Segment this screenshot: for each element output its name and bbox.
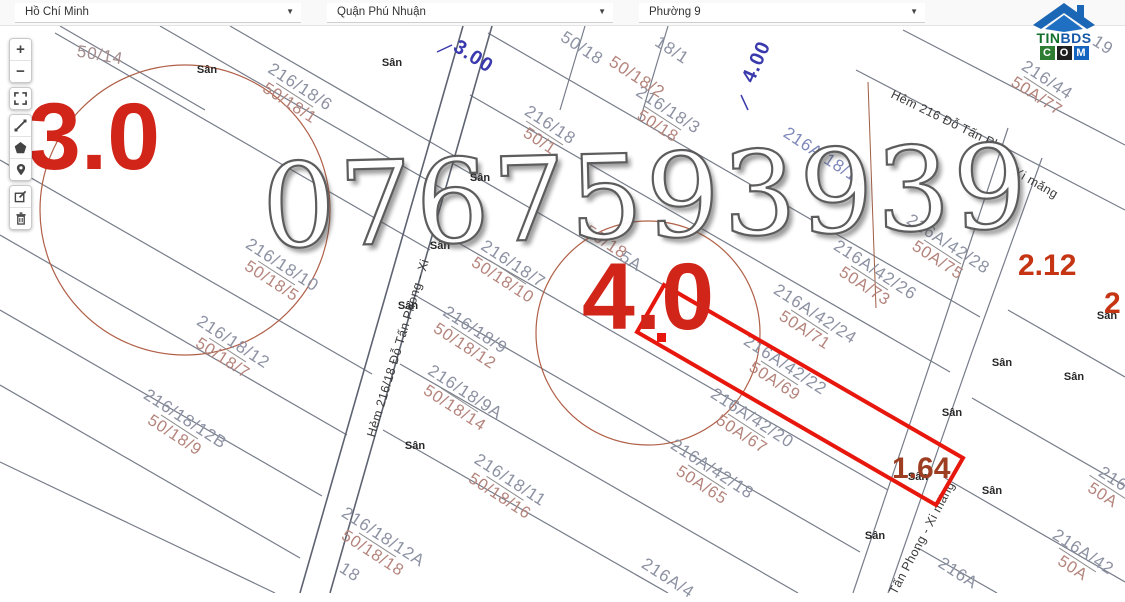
measurement-value: 4.0 bbox=[582, 252, 714, 342]
select-ward[interactable]: Phường 9 ▼ bbox=[639, 3, 925, 23]
select-city-value: Hồ Chí Minh bbox=[25, 6, 89, 18]
select-district[interactable]: Quận Phú Nhuận ▼ bbox=[327, 3, 613, 23]
map-canvas[interactable]: 0767593939 216/18/650/18/1216/1850/1216/… bbox=[0, 0, 1125, 593]
edit-button[interactable] bbox=[10, 186, 31, 208]
measurement-value: 2.12 bbox=[1018, 252, 1076, 281]
select-district-value: Quận Phú Nhuận bbox=[337, 6, 426, 18]
house-icon bbox=[1033, 3, 1095, 33]
map-toolbar: + − bbox=[9, 38, 32, 230]
location-filter-bar: Hồ Chí Minh ▼ Quận Phú Nhuận ▼ Phường 9 … bbox=[0, 0, 1125, 26]
marker-icon bbox=[15, 163, 27, 176]
measurement-value: 3.0 bbox=[28, 92, 160, 182]
measurement-value: 1.64 bbox=[892, 455, 950, 484]
measure-line-button[interactable] bbox=[10, 115, 31, 137]
draw-polygon-button[interactable] bbox=[10, 137, 31, 159]
yard-label: Sân bbox=[1064, 371, 1084, 383]
chevron-down-icon: ▼ bbox=[910, 8, 918, 16]
edit-icon bbox=[14, 190, 27, 203]
fullscreen-button[interactable] bbox=[10, 88, 31, 109]
delete-button[interactable] bbox=[10, 208, 31, 229]
yard-label: Sân bbox=[982, 485, 1002, 497]
yard-label: Sân bbox=[865, 530, 885, 542]
select-ward-value: Phường 9 bbox=[649, 6, 701, 18]
chevron-down-icon: ▼ bbox=[598, 8, 606, 16]
tinbds-logo: TINBDS C O M bbox=[1021, 3, 1107, 60]
parcel-boundaries bbox=[0, 0, 1125, 593]
polygon-icon bbox=[14, 141, 27, 154]
zoom-in-button[interactable]: + bbox=[10, 39, 31, 61]
marker-button[interactable] bbox=[10, 159, 31, 180]
yard-label: Sân bbox=[382, 57, 402, 69]
logo-subtitle: C O M bbox=[1021, 46, 1107, 60]
yard-label: Sân bbox=[942, 407, 962, 419]
select-city[interactable]: Hồ Chí Minh ▼ bbox=[15, 3, 301, 23]
zoom-out-button[interactable]: − bbox=[10, 61, 31, 82]
yard-label: Sân bbox=[992, 357, 1012, 369]
logo-letter: O bbox=[1057, 46, 1072, 60]
minus-icon: − bbox=[16, 63, 25, 80]
trash-icon bbox=[15, 212, 27, 225]
chevron-down-icon: ▼ bbox=[286, 8, 294, 16]
logo-letter: C bbox=[1040, 46, 1055, 60]
plus-icon: + bbox=[16, 41, 25, 58]
yard-label: Sân bbox=[405, 440, 425, 452]
fullscreen-icon bbox=[14, 92, 27, 105]
logo-title: TINBDS bbox=[1021, 31, 1107, 45]
yard-label: Sân bbox=[197, 64, 217, 76]
measurement-value: 2 bbox=[1104, 290, 1121, 319]
logo-letter: M bbox=[1074, 46, 1089, 60]
line-icon bbox=[14, 119, 27, 132]
